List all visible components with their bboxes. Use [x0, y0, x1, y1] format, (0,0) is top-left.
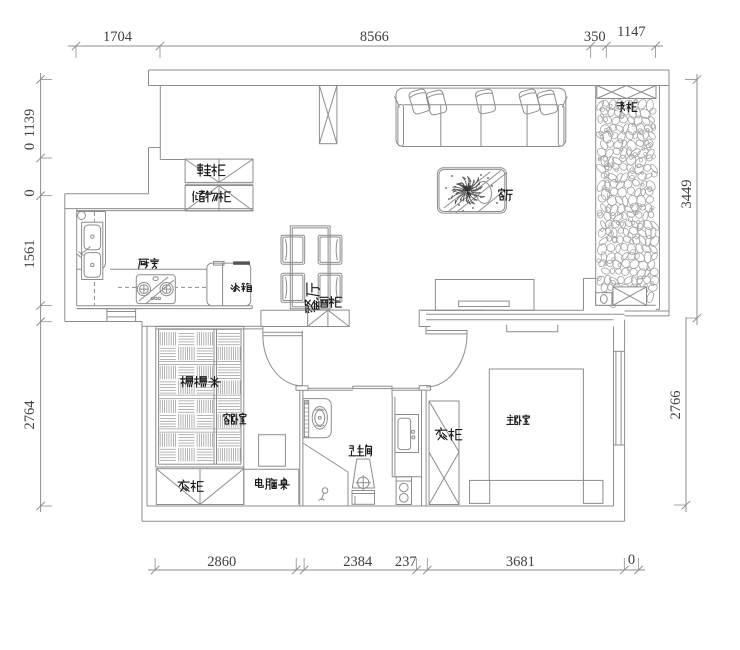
svg-text:3681: 3681	[506, 554, 535, 570]
svg-text:2764: 2764	[22, 400, 38, 430]
svg-text:3449: 3449	[679, 180, 695, 209]
svg-text:2766: 2766	[668, 391, 684, 420]
svg-text:1561: 1561	[22, 240, 38, 269]
svg-text:350: 350	[584, 29, 606, 45]
svg-text:8566: 8566	[360, 29, 389, 45]
svg-text:1704: 1704	[103, 29, 133, 45]
svg-text:0: 0	[22, 189, 38, 196]
svg-text:2384: 2384	[343, 554, 373, 570]
svg-text:1147: 1147	[617, 24, 645, 40]
svg-text:237: 237	[395, 554, 417, 570]
svg-text:0: 0	[628, 552, 635, 568]
svg-text:1139: 1139	[22, 109, 38, 137]
svg-text:0: 0	[22, 143, 38, 150]
svg-text:2860: 2860	[207, 554, 236, 570]
